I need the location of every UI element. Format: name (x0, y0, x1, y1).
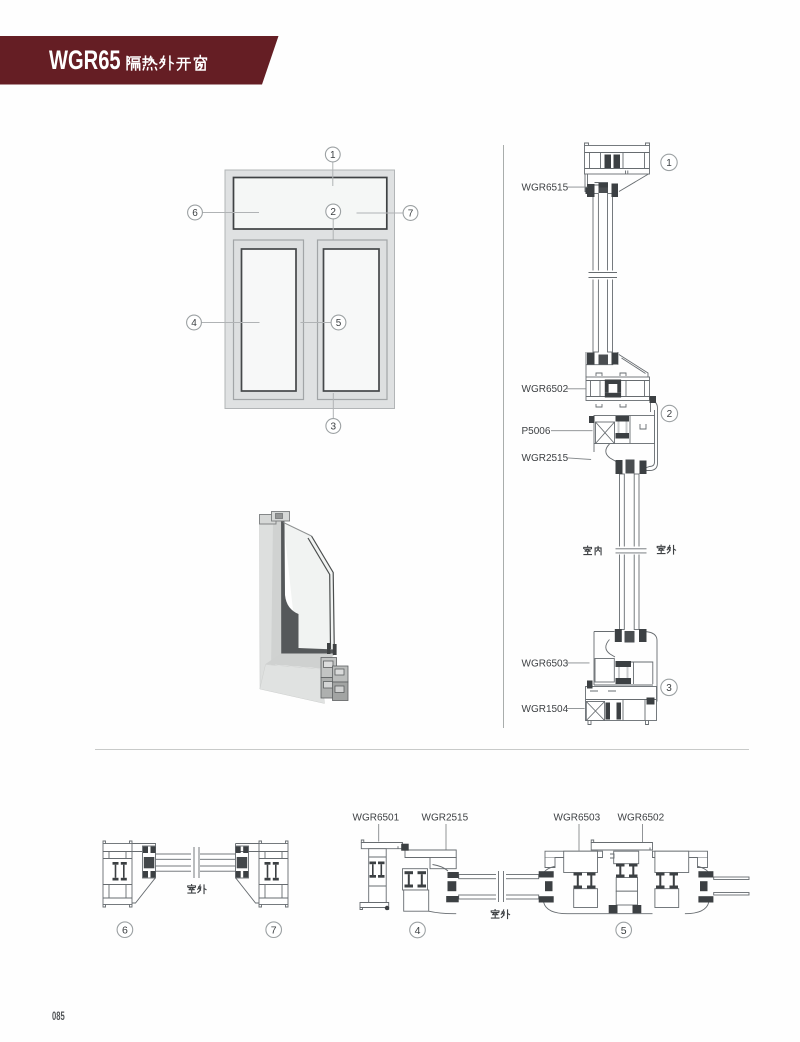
svg-text:5: 5 (336, 318, 342, 329)
svg-text:2: 2 (667, 409, 673, 420)
svg-text:3: 3 (331, 422, 337, 433)
svg-text:WGR6502: WGR6502 (522, 384, 569, 395)
svg-text:WGR6502: WGR6502 (618, 813, 665, 824)
svg-text:6: 6 (122, 925, 128, 937)
svg-text:WGR1504: WGR1504 (522, 704, 569, 715)
svg-text:2: 2 (330, 207, 336, 218)
svg-text:5: 5 (621, 925, 627, 937)
svg-text:WGR6503: WGR6503 (522, 659, 569, 670)
svg-text:7: 7 (408, 209, 414, 220)
svg-text:7: 7 (271, 925, 277, 937)
svg-text:1: 1 (666, 158, 672, 169)
svg-text:3: 3 (666, 683, 672, 694)
svg-text:WGR6515: WGR6515 (522, 183, 569, 194)
svg-text:WGR6503: WGR6503 (554, 813, 601, 824)
svg-text:6: 6 (192, 208, 198, 219)
svg-text:4: 4 (191, 318, 197, 329)
svg-text:WGR2515: WGR2515 (422, 813, 469, 824)
svg-text:P5006: P5006 (522, 426, 551, 437)
svg-text:4: 4 (415, 925, 421, 937)
svg-text:1: 1 (330, 150, 336, 161)
svg-text:WGR6501: WGR6501 (353, 813, 400, 824)
svg-text:WGR2515: WGR2515 (522, 453, 569, 464)
